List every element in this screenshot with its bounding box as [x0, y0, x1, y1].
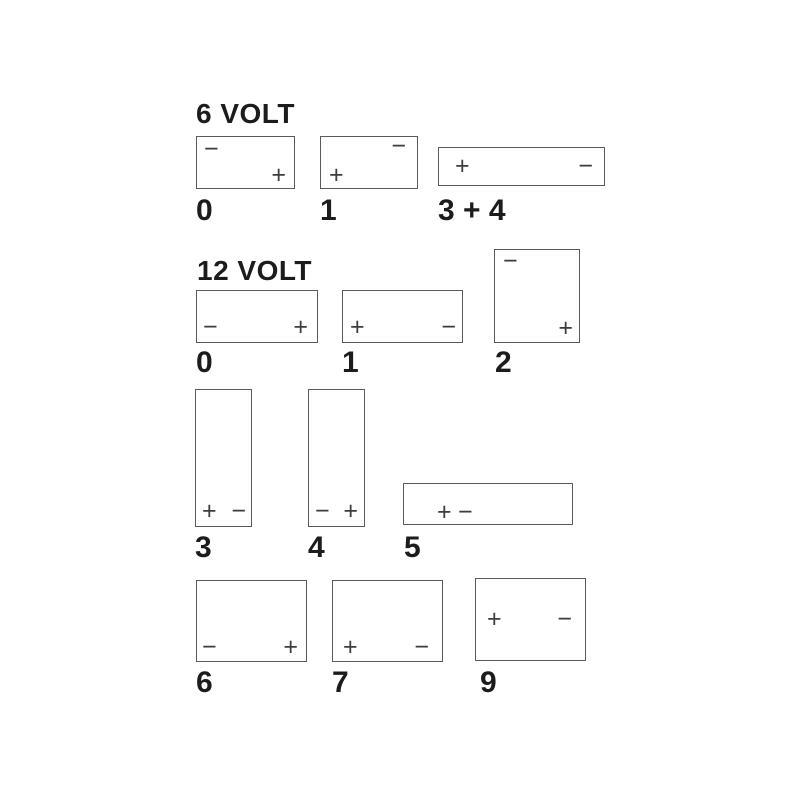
battery-type-label-12v-2: 2	[495, 348, 512, 378]
battery-type-label-12v-1: 1	[342, 348, 359, 378]
positive-terminal: +	[293, 315, 308, 339]
battery-12v-type-3: + −	[195, 389, 252, 527]
battery-type-label-12v-0: 0	[196, 348, 213, 378]
negative-terminal: −	[557, 607, 572, 631]
negative-terminal: −	[578, 154, 593, 178]
battery-12v-type-7: + −	[332, 580, 443, 662]
battery-6v-type-0: − +	[196, 136, 295, 189]
battery-12v-type-4: − +	[308, 389, 365, 527]
negative-terminal: −	[441, 315, 456, 339]
negative-terminal: −	[202, 635, 217, 659]
positive-terminal: +	[283, 635, 298, 659]
negative-terminal: −	[231, 499, 246, 523]
negative-terminal: −	[414, 635, 429, 659]
battery-layout-diagram: 6 VOLT − + − + + − 0 1 3 + 4 12 VOLT − +…	[0, 0, 800, 800]
battery-12v-type-0: − +	[196, 290, 318, 343]
battery-6v-type-3-4: + −	[438, 147, 605, 186]
battery-type-label-12v-4: 4	[308, 533, 325, 563]
positive-terminal: +	[271, 163, 286, 187]
negative-terminal: −	[203, 315, 218, 339]
negative-terminal: −	[503, 249, 518, 273]
positive-terminal: +	[487, 607, 502, 631]
battery-type-label-6v-1: 1	[320, 196, 337, 226]
battery-12v-type-2: − +	[494, 249, 580, 343]
battery-6v-type-1: − +	[320, 136, 418, 189]
negative-terminal: −	[458, 500, 473, 524]
negative-terminal: −	[315, 499, 330, 523]
positive-terminal: +	[202, 499, 217, 523]
section-title-12-volt: 12 VOLT	[197, 257, 312, 285]
battery-type-label-12v-5: 5	[404, 533, 421, 563]
battery-12v-type-1: + −	[342, 290, 463, 343]
battery-type-label-12v-3: 3	[195, 533, 212, 563]
section-title-6-volt: 6 VOLT	[196, 100, 295, 128]
battery-12v-type-6: − +	[196, 580, 307, 662]
battery-type-label-6v-3-4: 3 + 4	[438, 196, 506, 226]
battery-type-label-12v-9: 9	[480, 668, 497, 698]
battery-12v-type-5: + −	[403, 483, 573, 525]
battery-12v-type-9: + −	[475, 578, 586, 661]
positive-terminal: +	[350, 315, 365, 339]
positive-terminal: +	[437, 500, 452, 524]
battery-type-label-12v-7: 7	[332, 668, 349, 698]
battery-type-label-6v-0: 0	[196, 196, 213, 226]
negative-terminal: −	[391, 134, 406, 158]
positive-terminal: +	[343, 635, 358, 659]
positive-terminal: +	[329, 163, 344, 187]
positive-terminal: +	[558, 316, 573, 340]
positive-terminal: +	[455, 154, 470, 178]
positive-terminal: +	[343, 499, 358, 523]
battery-type-label-12v-6: 6	[196, 668, 213, 698]
negative-terminal: −	[204, 137, 219, 161]
